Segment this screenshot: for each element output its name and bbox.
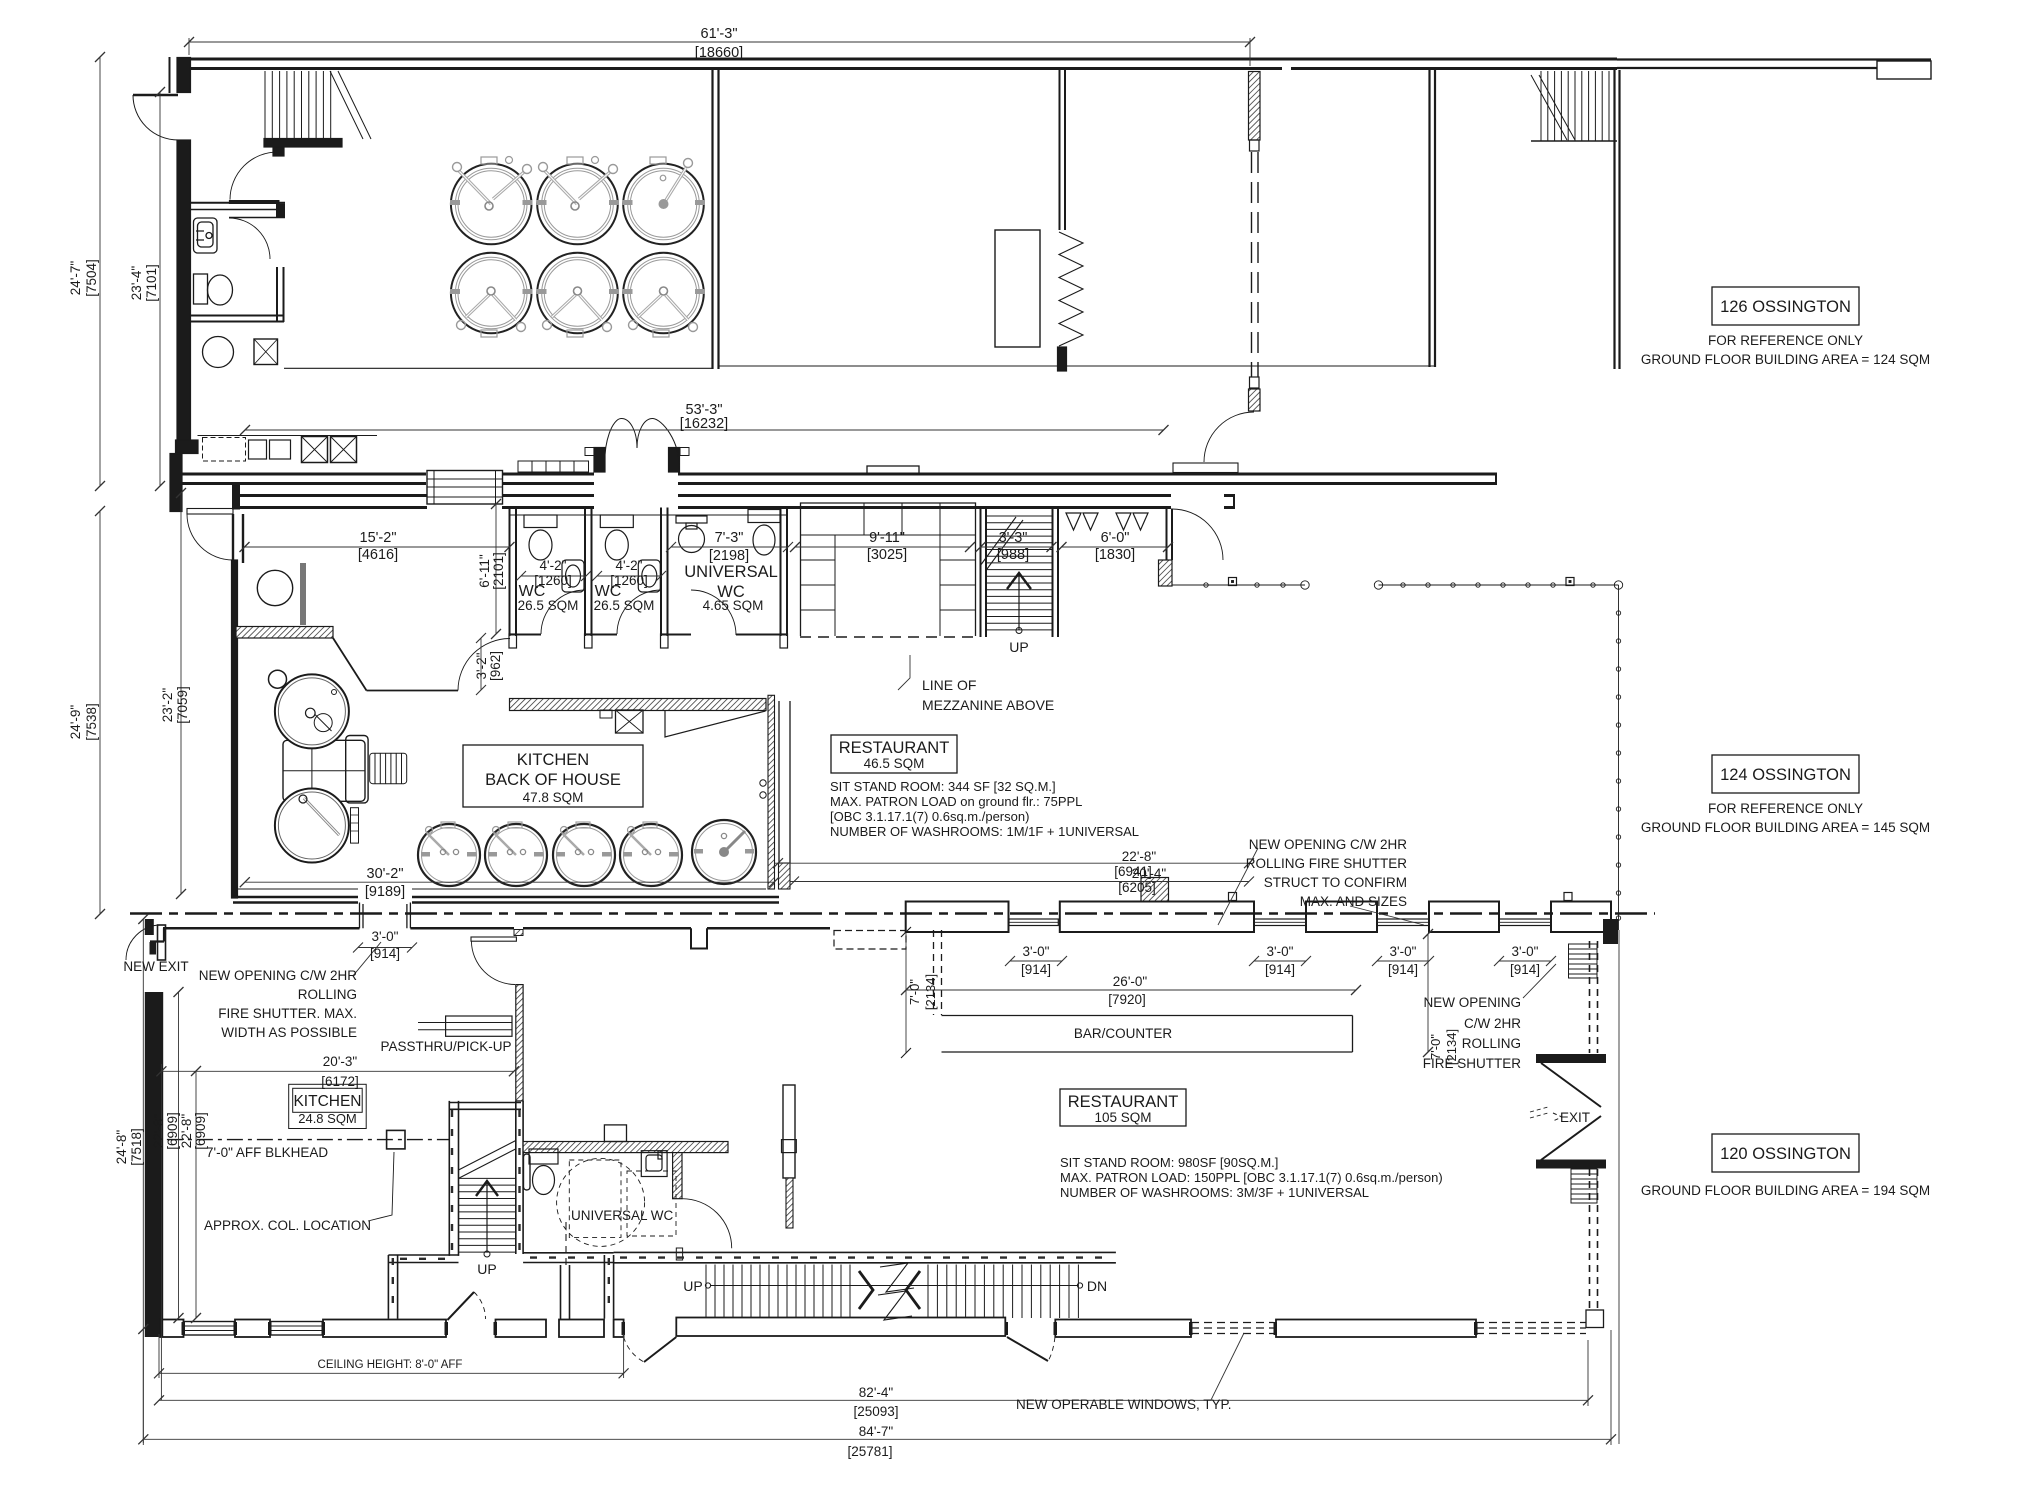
svg-text:20'-4": 20'-4" [1132,866,1167,881]
svg-text:UP: UP [683,1278,702,1294]
svg-text:GROUND FLOOR BUILDING AREA = 1: GROUND FLOOR BUILDING AREA = 124 SQM [1641,352,1930,367]
svg-text:126 OSSINGTON: 126 OSSINGTON [1720,298,1851,316]
svg-text:[7518]: [7518] [129,1128,144,1166]
svg-text:[9189]: [9189] [365,884,405,900]
svg-text:3'-2": 3'-2" [474,652,489,679]
svg-text:KITCHEN: KITCHEN [517,751,589,769]
svg-text:[3025]: [3025] [867,547,907,563]
svg-text:RESTAURANT: RESTAURANT [1068,1093,1179,1111]
svg-text:24'-9": 24'-9" [68,705,83,740]
svg-text:UP: UP [477,1261,496,1277]
svg-text:RESTAURANT: RESTAURANT [839,739,950,757]
svg-text:[914]: [914] [370,946,400,961]
svg-text:[18660]: [18660] [695,45,743,61]
svg-text:3'-0": 3'-0" [1267,944,1294,959]
svg-text:[16232]: [16232] [680,416,728,432]
svg-text:[988]: [988] [997,547,1029,563]
svg-text:24'-8": 24'-8" [114,1130,129,1165]
svg-text:23'-2": 23'-2" [160,688,175,723]
svg-text:[914]: [914] [1021,962,1051,977]
svg-text:[25093]: [25093] [853,1404,898,1419]
svg-text:SIT STAND ROOM: 344 SF [32 SQ.: SIT STAND ROOM: 344 SF [32 SQ.M.] [830,779,1056,794]
svg-text:FOR REFERENCE ONLY: FOR REFERENCE ONLY [1708,801,1863,816]
svg-text:46.5 SQM: 46.5 SQM [864,756,925,771]
svg-text:4'-2": 4'-2" [540,558,567,573]
svg-text:[2198]: [2198] [709,548,749,564]
svg-text:[2101]: [2101] [491,552,506,590]
svg-text:26.5 SQM: 26.5 SQM [518,598,579,613]
svg-text:7'-3": 7'-3" [715,530,744,546]
svg-text:STRUCT TO CONFIRM: STRUCT TO CONFIRM [1264,875,1407,890]
svg-text:[914]: [914] [1388,962,1418,977]
svg-text:[7920]: [7920] [1108,992,1146,1007]
svg-text:CEILING HEIGHT: 8'-0" AFF: CEILING HEIGHT: 8'-0" AFF [318,1359,463,1371]
svg-text:UP: UP [1009,639,1028,655]
svg-text:22'-8": 22'-8" [179,1114,194,1149]
svg-text:22'-8": 22'-8" [1122,849,1157,864]
svg-text:NUMBER OF WASHROOMS: 3M/3F + 1: NUMBER OF WASHROOMS: 3M/3F + 1UNIVERSAL [1060,1185,1369,1200]
svg-text:82'-4": 82'-4" [859,1385,894,1400]
svg-text:[7101]: [7101] [144,264,159,302]
svg-text:30'-2": 30'-2" [367,866,404,882]
svg-text:BAR/COUNTER: BAR/COUNTER [1074,1026,1173,1041]
svg-text:NEW OPERABLE WINDOWS, TYP.: NEW OPERABLE WINDOWS, TYP. [1016,1397,1232,1412]
svg-text:NUMBER OF WASHROOMS: 1M/1F + 1: NUMBER OF WASHROOMS: 1M/1F + 1UNIVERSAL [830,824,1139,839]
svg-text:3'-3": 3'-3" [999,530,1028,546]
svg-text:APPROX. COL. LOCATION: APPROX. COL. LOCATION [204,1218,371,1233]
svg-text:61'-3": 61'-3" [701,26,738,42]
svg-text:[6909]: [6909] [165,1112,180,1150]
svg-text:4.65 SQM: 4.65 SQM [703,598,764,613]
svg-text:EXIT: EXIT [1560,1110,1590,1125]
svg-text:[914]: [914] [1510,962,1540,977]
svg-text:ROLLING FIRE SHUTTER: ROLLING FIRE SHUTTER [1246,856,1408,871]
svg-text:BACK OF HOUSE: BACK OF HOUSE [485,771,621,789]
svg-text:KITCHEN: KITCHEN [293,1093,361,1110]
svg-text:105 SQM: 105 SQM [1094,1110,1151,1125]
svg-text:[2134]: [2134] [1444,1029,1459,1065]
svg-text:MAX. PATRON LOAD: 150PPL [OBC: MAX. PATRON LOAD: 150PPL [OBC 3.1.17.1(7… [1060,1170,1443,1185]
svg-text:[7504]: [7504] [84,259,99,297]
svg-text:22'-8": 22'-8" [151,1114,166,1149]
svg-text:[914]: [914] [1265,962,1295,977]
svg-text:ROLLING: ROLLING [298,987,357,1002]
svg-text:GROUND FLOOR BUILDING AREA = 1: GROUND FLOOR BUILDING AREA = 145 SQM [1641,820,1930,835]
svg-text:FOR REFERENCE ONLY: FOR REFERENCE ONLY [1708,333,1863,348]
svg-text:NEW OPENING C/W 2HR: NEW OPENING C/W 2HR [1249,837,1408,852]
svg-text:GROUND FLOOR BUILDING AREA = 1: GROUND FLOOR BUILDING AREA = 194 SQM [1641,1183,1930,1198]
svg-text:[1830]: [1830] [1095,547,1135,563]
svg-text:24.8 SQM: 24.8 SQM [298,1111,357,1126]
svg-text:26.5 SQM: 26.5 SQM [594,598,655,613]
svg-text:NEW OPENING C/W 2HR: NEW OPENING C/W 2HR [199,968,358,983]
svg-text:NEW EXIT: NEW EXIT [123,959,188,974]
svg-text:[6205]: [6205] [1118,880,1156,895]
svg-text:WIDTH AS POSSIBLE: WIDTH AS POSSIBLE [221,1025,357,1040]
svg-text:84'-7": 84'-7" [859,1424,894,1439]
svg-text:23'-4": 23'-4" [129,266,144,301]
svg-text:3'-0": 3'-0" [372,929,399,944]
svg-text:LINE OF: LINE OF [922,677,976,693]
svg-text:26'-0": 26'-0" [1113,974,1148,989]
svg-text:PASSTHRU/PICK-UP: PASSTHRU/PICK-UP [380,1039,511,1054]
svg-text:120 OSSINGTON: 120 OSSINGTON [1720,1145,1851,1163]
svg-text:7'-0": 7'-0" [1428,1034,1443,1060]
svg-text:24'-7": 24'-7" [68,261,83,296]
svg-text:124 OSSINGTON: 124 OSSINGTON [1720,766,1851,784]
svg-text:[6172]: [6172] [321,1074,359,1089]
svg-text:MAX. AND SIZES: MAX. AND SIZES [1300,894,1407,909]
svg-text:FIRE SHUTTER. MAX.: FIRE SHUTTER. MAX. [218,1006,357,1021]
svg-text:20'-3": 20'-3" [323,1054,358,1069]
svg-text:3'-0": 3'-0" [1023,944,1050,959]
svg-text:C/W 2HR: C/W 2HR [1464,1016,1521,1031]
svg-text:DN: DN [1087,1278,1107,1294]
svg-text:NEW OPENING: NEW OPENING [1423,995,1521,1010]
svg-text:MEZZANINE ABOVE: MEZZANINE ABOVE [922,697,1054,713]
svg-text:[OBC 3.1.17.1(7) 0.6sq.m./pers: [OBC 3.1.17.1(7) 0.6sq.m./person) [830,809,1029,824]
svg-text:SIT STAND ROOM: 980SF [90SQ.M.: SIT STAND ROOM: 980SF [90SQ.M.] [1060,1155,1278,1170]
svg-text:6'-0": 6'-0" [1101,530,1130,546]
svg-text:9'-11": 9'-11" [869,530,905,546]
svg-text:UNIVERSAL: UNIVERSAL [684,563,778,581]
svg-text:[962]: [962] [488,651,503,681]
svg-text:47.8 SQM: 47.8 SQM [523,790,584,805]
svg-text:ROLLING: ROLLING [1462,1036,1521,1051]
svg-text:[25781]: [25781] [847,1444,892,1459]
svg-text:3'-0": 3'-0" [1390,944,1417,959]
svg-text:MAX. PATRON LOAD on ground flr: MAX. PATRON LOAD on ground flr.: 75PPL [830,794,1082,809]
svg-text:[4616]: [4616] [358,547,398,563]
svg-text:4'-2": 4'-2" [616,558,643,573]
svg-text:7'-0" AFF BLKHEAD: 7'-0" AFF BLKHEAD [206,1145,328,1160]
svg-text:6'-11": 6'-11" [477,554,492,588]
svg-text:[7059]: [7059] [175,686,190,724]
svg-text:15'-2": 15'-2" [360,530,397,546]
svg-text:[7538]: [7538] [84,703,99,741]
svg-text:UNIVERSAL WC: UNIVERSAL WC [571,1208,674,1223]
svg-text:7'-0": 7'-0" [907,979,922,1005]
svg-text:[2134]: [2134] [923,974,938,1010]
svg-text:3'-0": 3'-0" [1512,944,1539,959]
